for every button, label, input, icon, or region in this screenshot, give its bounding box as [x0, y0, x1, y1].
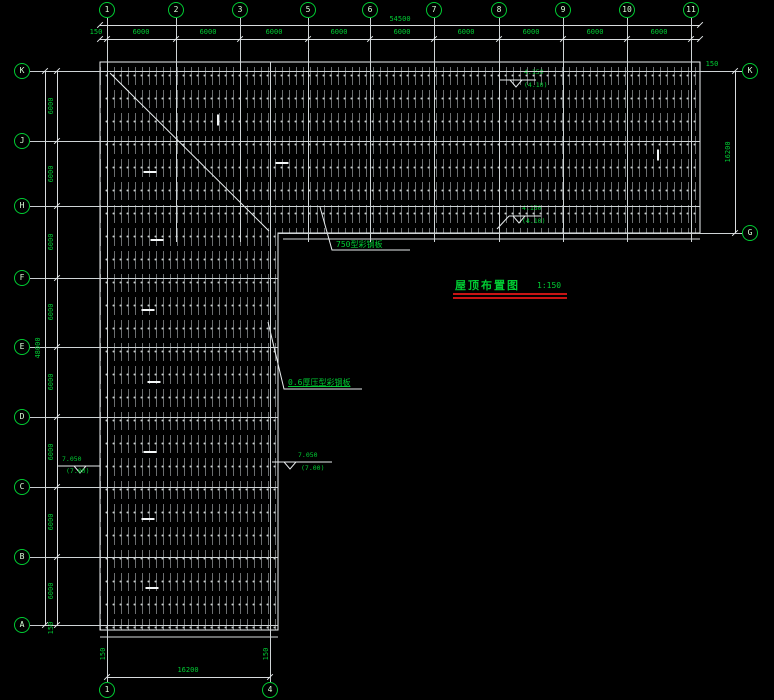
- grid-column-line-11: [691, 25, 692, 242]
- dim-text-top-bay-1: 6000: [200, 28, 217, 36]
- dim-text-left-bay-2: 6000: [47, 234, 55, 251]
- grid-row-line-C: [45, 487, 278, 488]
- elevation-value-4: 7.050: [298, 451, 318, 459]
- grid-bubble-left-E: E: [14, 339, 30, 355]
- grid-column-line-5: [308, 25, 309, 242]
- title-underline-bottom: [453, 297, 567, 299]
- dim-line-left-overall: [45, 71, 46, 625]
- lap-mark-8: [217, 115, 219, 126]
- dim-text-left-overall: 48000: [34, 337, 42, 358]
- dim-line-top-bays: [100, 39, 700, 40]
- grid-bubble-left-B: B: [14, 549, 30, 565]
- drawing-scale: 1:150: [537, 281, 561, 290]
- grid-column-line-7: [434, 25, 435, 242]
- dim-text-offset-2: 150: [99, 648, 107, 661]
- lap-mark-7: [276, 162, 289, 164]
- dim-text-offset-0: 150: [90, 28, 103, 36]
- dim-text-bottom-overall: 16200: [177, 666, 198, 674]
- linework-overlay: [0, 0, 774, 700]
- lap-mark-0: [144, 171, 157, 173]
- grid-bubble-top-11: 11: [683, 2, 699, 18]
- grid-bubble-top-5: 5: [300, 2, 316, 18]
- grid-column-stem-5: [308, 18, 309, 25]
- elevation-sub-1: (4.10): [524, 81, 547, 89]
- grid-bubble-bottom-1: 1: [99, 682, 115, 698]
- grid-bubble-top-1: 1: [99, 2, 115, 18]
- panel-annotation-2: 0.6厚压型彩钢板: [288, 377, 350, 388]
- drawing-title: 屋顶布置图: [455, 277, 520, 293]
- dim-text-top-bay-2: 6000: [266, 28, 283, 36]
- dim-line-right-overall: [735, 71, 736, 233]
- roof-outline: [100, 62, 700, 630]
- dim-text-offset-3: 150: [262, 648, 270, 661]
- grid-bubble-left-D: D: [14, 409, 30, 425]
- grid-bubble-left-J: J: [14, 133, 30, 149]
- grid-column-line-6: [370, 25, 371, 242]
- grid-row-line-K: [45, 71, 735, 72]
- valley-diagonal-line: [110, 73, 269, 231]
- grid-bubble-top-7: 7: [426, 2, 442, 18]
- elevation-sub-2: (4.10): [522, 217, 545, 225]
- grid-column-line-1: [107, 25, 108, 677]
- grid-row-stem-right-K: [735, 71, 742, 72]
- elevation-value-1: 4.150: [524, 68, 544, 76]
- grid-column-line-2: [176, 25, 177, 242]
- grid-bubble-left-H: H: [14, 198, 30, 214]
- grid-bubble-right-K: K: [742, 63, 758, 79]
- grid-row-stem-J: [30, 141, 45, 142]
- cad-drawing-canvas[interactable]: 屋顶布置图 1:150 750型彩钢板 0.6厚压型彩钢板 4.150 (4.1…: [0, 0, 774, 700]
- grid-row-stem-D: [30, 417, 45, 418]
- grid-row-line-E: [45, 347, 278, 348]
- title-underline-top: [453, 293, 567, 295]
- dim-text-left-bay-5: 6000: [47, 444, 55, 461]
- dim-text-left-bay-7: 6000: [47, 583, 55, 600]
- dim-text-top-bay-5: 6000: [458, 28, 475, 36]
- grid-row-line-D: [45, 417, 278, 418]
- dim-text-top-bay-8: 6000: [651, 28, 668, 36]
- grid-bubble-left-A: A: [14, 617, 30, 633]
- dim-text-left-bay-0: 6000: [47, 98, 55, 115]
- dim-text-left-bay-6: 6000: [47, 514, 55, 531]
- elevation-sub-4: (7.00): [301, 464, 324, 472]
- dim-text-top-bay-0: 6000: [133, 28, 150, 36]
- dim-text-top-overall: 54500: [389, 15, 410, 23]
- elevation-sub-3: (7.00): [66, 467, 89, 475]
- grid-row-line-G: [278, 233, 735, 234]
- lap-mark-6: [146, 587, 159, 589]
- grid-column-line-9: [563, 25, 564, 242]
- grid-bubble-right-G: G: [742, 225, 758, 241]
- dim-text-left-bay-1: 6000: [47, 166, 55, 183]
- grid-column-stem-1: [107, 18, 108, 25]
- grid-bubble-left-C: C: [14, 479, 30, 495]
- grid-column-stem-9: [563, 18, 564, 25]
- grid-column-stem-6: [370, 18, 371, 25]
- grid-column-stem-7: [434, 18, 435, 25]
- grid-bubble-top-3: 3: [232, 2, 248, 18]
- grid-row-line-B: [45, 557, 278, 558]
- dim-text-left-bay-4: 6000: [47, 374, 55, 391]
- dim-text-offset-1: 150: [706, 60, 719, 68]
- grid-column-stem-8: [499, 18, 500, 25]
- grid-bubble-bottom-4: 4: [262, 682, 278, 698]
- grid-row-stem-H: [30, 206, 45, 207]
- grid-bubble-top-8: 8: [491, 2, 507, 18]
- dim-text-left-bay-3: 6000: [47, 304, 55, 321]
- grid-column-line-8: [499, 25, 500, 242]
- grid-column-stem-11: [691, 18, 692, 25]
- grid-column-stem-3: [240, 18, 241, 25]
- lap-mark-2: [142, 309, 155, 311]
- lap-mark-4: [144, 451, 157, 453]
- dim-text-top-bay-4: 6000: [394, 28, 411, 36]
- grid-row-stem-F: [30, 278, 45, 279]
- grid-column-line-3: [240, 25, 241, 242]
- dim-line-top-overall: [100, 25, 700, 26]
- grid-row-line-F: [45, 278, 278, 279]
- grid-row-line-H: [45, 206, 700, 207]
- grid-row-stem-B: [30, 557, 45, 558]
- grid-bubble-top-9: 9: [555, 2, 571, 18]
- grid-column-stem-bottom-4: [270, 677, 271, 682]
- dim-text-right-overall: 16200: [724, 141, 732, 162]
- grid-column-stem-2: [176, 18, 177, 25]
- grid-row-line-A: [45, 625, 278, 626]
- lap-mark-3: [148, 381, 161, 383]
- grid-bubble-left-K: K: [14, 63, 30, 79]
- grid-column-line-10: [627, 25, 628, 242]
- grid-column-stem-10: [627, 18, 628, 25]
- dim-line-bottom-overall: [107, 677, 270, 678]
- dim-line-left-bays: [57, 71, 58, 625]
- dim-text-top-bay-6: 6000: [523, 28, 540, 36]
- dim-text-offset-4: 150: [47, 622, 55, 635]
- panel-annotation-1: 750型彩钢板: [336, 239, 382, 250]
- lap-mark-5: [142, 518, 155, 520]
- grid-bubble-left-F: F: [14, 270, 30, 286]
- grid-row-stem-C: [30, 487, 45, 488]
- lap-mark-9: [657, 150, 659, 161]
- lap-mark-1: [151, 239, 164, 241]
- grid-row-line-J: [45, 141, 700, 142]
- grid-column-line-4: [270, 62, 271, 677]
- grid-row-stem-right-G: [735, 233, 742, 234]
- dim-text-top-bay-7: 6000: [587, 28, 604, 36]
- grid-bubble-top-2: 2: [168, 2, 184, 18]
- dim-text-top-bay-3: 6000: [331, 28, 348, 36]
- grid-bubble-top-10: 10: [619, 2, 635, 18]
- grid-bubble-top-6: 6: [362, 2, 378, 18]
- elevation-value-3: 7.050: [62, 455, 82, 463]
